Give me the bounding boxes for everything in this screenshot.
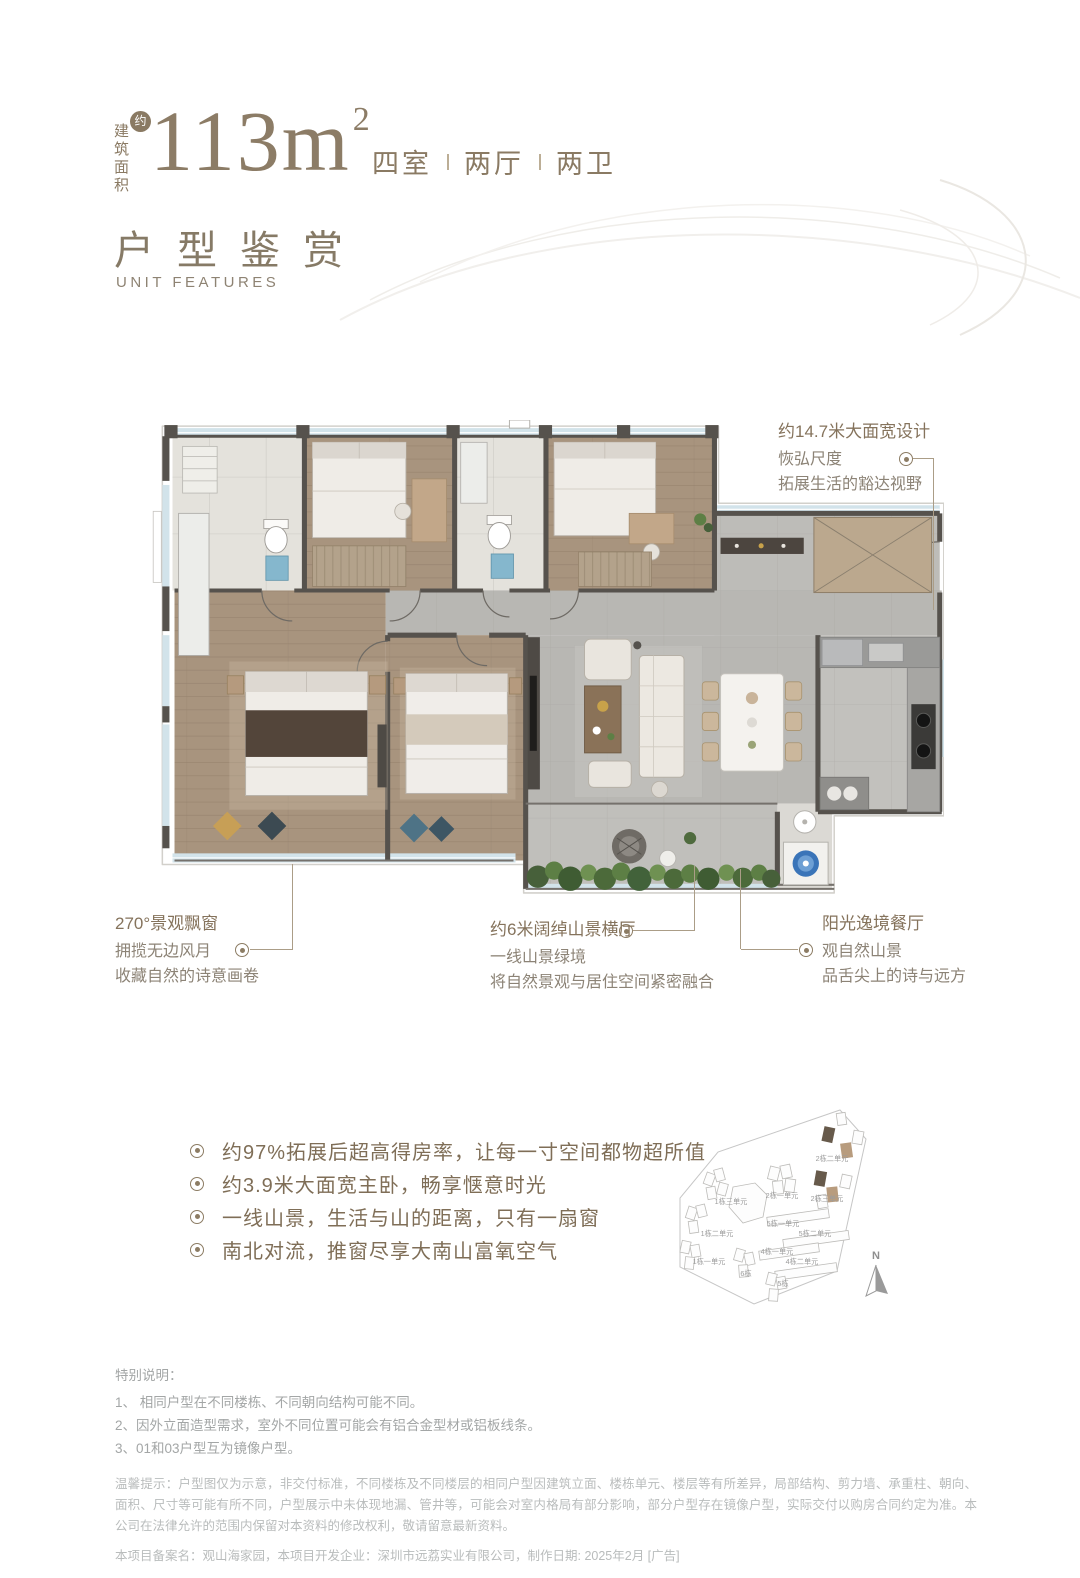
special-note-item: 2、因外立面造型需求，室外不同位置可能会有铝合金型材或铝板线条。	[115, 1414, 977, 1437]
site-map-building-label: 2栋二单元	[816, 1154, 849, 1163]
compass-label: N	[872, 1250, 880, 1262]
site-map-building-label: 1栋三单元	[715, 1197, 748, 1206]
special-note-item: 1、 相同户型在不同楼栋、不同朝向结构可能不同。	[115, 1391, 977, 1414]
page-title: 户型鉴赏	[114, 218, 366, 276]
bullet-icon	[190, 1243, 204, 1257]
master-bedroom	[227, 662, 387, 810]
selling-point-item: 南北对流，推窗尽享大南山富氧空气	[190, 1239, 706, 1260]
site-map-building-label: 5栋	[777, 1279, 788, 1288]
spec-separator	[447, 154, 449, 170]
area-number-superscript: 2	[353, 101, 372, 138]
selling-point-item: 一线山景，生活与山的距离，只有一扇窗	[190, 1206, 706, 1227]
poster-page: 建筑面积 约 113m2 四室 两厅 两卫 户型鉴赏 UNIT FEATURES	[0, 0, 1080, 1578]
annotation-bottom-right: 阳光逸境餐厅 观自然山景 品舌尖上的诗与远方	[822, 912, 966, 989]
site-map-building-label: 5栋一单元	[767, 1219, 800, 1228]
area-number-value: 113m	[150, 93, 351, 189]
annotation-line: 收藏自然的诗意画卷	[115, 964, 259, 989]
connector-line	[933, 458, 934, 610]
connector-line	[741, 949, 798, 950]
special-notes-title: 特别说明：	[115, 1364, 977, 1384]
footnotes: 特别说明： 1、 相同户型在不同楼栋、不同朝向结构可能不同。 2、因外立面造型需…	[115, 1364, 977, 1564]
highlighted-buildings	[814, 1126, 853, 1202]
selling-point-text: 一线山景，生活与山的距离，只有一扇窗	[222, 1202, 600, 1231]
site-map-building-label: 2栋三单元	[811, 1194, 844, 1203]
spec-rooms: 四室	[372, 142, 432, 181]
selling-point-text: 约97%拓展后超高得房率，让每一寸空间都物超所值	[222, 1136, 706, 1165]
area-number: 113m2	[150, 98, 372, 203]
site-map-building-label: 6栋	[740, 1269, 751, 1278]
connector-line	[913, 458, 934, 459]
record-line: 本项目备案名：观山海家园，本项目开发企业：深圳市远荔实业有限公司，制作日期: 2…	[115, 1545, 977, 1564]
selling-point-text: 约3.9米大面宽主卧，畅享惬意时光	[222, 1169, 547, 1198]
bullet-icon	[190, 1144, 204, 1158]
bullet-icon	[190, 1210, 204, 1224]
special-note-item: 3、01和03户型互为镜像户型。	[115, 1437, 977, 1460]
connector-line	[250, 949, 293, 950]
approx-badge: 约	[130, 111, 151, 132]
connector-line	[740, 869, 741, 949]
connector-line	[694, 866, 695, 930]
bullet-icon	[190, 1177, 204, 1191]
disclaimer-text: 温馨提示：户型图仅为示意，非交付标准，不同楼栋及不同楼层的相同户型因建筑立面、楼…	[115, 1474, 977, 1537]
site-map-building-label: 5栋二单元	[799, 1229, 832, 1238]
unit-specs: 四室 两厅 两卫	[372, 142, 616, 181]
site-buildings	[680, 1112, 864, 1301]
site-map-building-label: 2栋一单元	[766, 1191, 799, 1200]
target-marker-icon	[799, 943, 813, 957]
dining-area	[702, 674, 801, 771]
spec-baths: 两卫	[556, 142, 616, 181]
site-map-building-label: 1栋二单元	[701, 1229, 734, 1238]
target-marker-icon	[235, 943, 249, 957]
compass-north-icon: N	[866, 1250, 888, 1296]
annotation-line: 拓展生活的豁达视野	[778, 472, 930, 497]
target-marker-icon	[619, 924, 633, 938]
annotation-title: 约14.7米大面宽设计	[778, 420, 930, 444]
annotation-line: 品舌尖上的诗与远方	[822, 964, 966, 989]
spec-separator	[539, 154, 541, 170]
site-map: 2栋二单元 2栋一单元 2栋三单元 1栋三单元 5栋一单元 5栋二单元 1栋二单…	[655, 1095, 975, 1315]
selling-point-item: 约97%拓展后超高得房率，让每一寸空间都物超所值	[190, 1140, 706, 1161]
connector-line	[633, 930, 695, 931]
annotation-title: 阳光逸境餐厅	[822, 912, 966, 936]
spec-halls: 两厅	[464, 142, 524, 181]
annotation-line: 将自然景观与居住空间紧密融合	[490, 970, 714, 995]
target-marker-icon	[899, 452, 913, 466]
area-prefix-label: 建筑面积	[112, 123, 128, 195]
site-map-building-label: 1栋一单元	[693, 1257, 726, 1266]
site-map-building-label: 4栋一单元	[761, 1247, 794, 1256]
annotation-line: 一线山景绿境	[490, 945, 714, 970]
page-subtitle: UNIT FEATURES	[116, 274, 279, 291]
annotation-line: 观自然山景	[822, 939, 966, 964]
annotation-title: 270°景观飘窗	[115, 912, 259, 936]
selling-points-list: 约97%拓展后超高得房率，让每一寸空间都物超所值 约3.9米大面宽主卧，畅享惬意…	[190, 1140, 706, 1272]
site-map-building-label: 4栋二单元	[786, 1257, 819, 1266]
selling-point-text: 南北对流，推窗尽享大南山富氧空气	[222, 1235, 558, 1264]
connector-line	[292, 864, 293, 949]
bedroom-4	[394, 668, 522, 800]
selling-point-item: 约3.9米大面宽主卧，畅享惬意时光	[190, 1173, 706, 1194]
exterior-ledge	[153, 511, 161, 582]
